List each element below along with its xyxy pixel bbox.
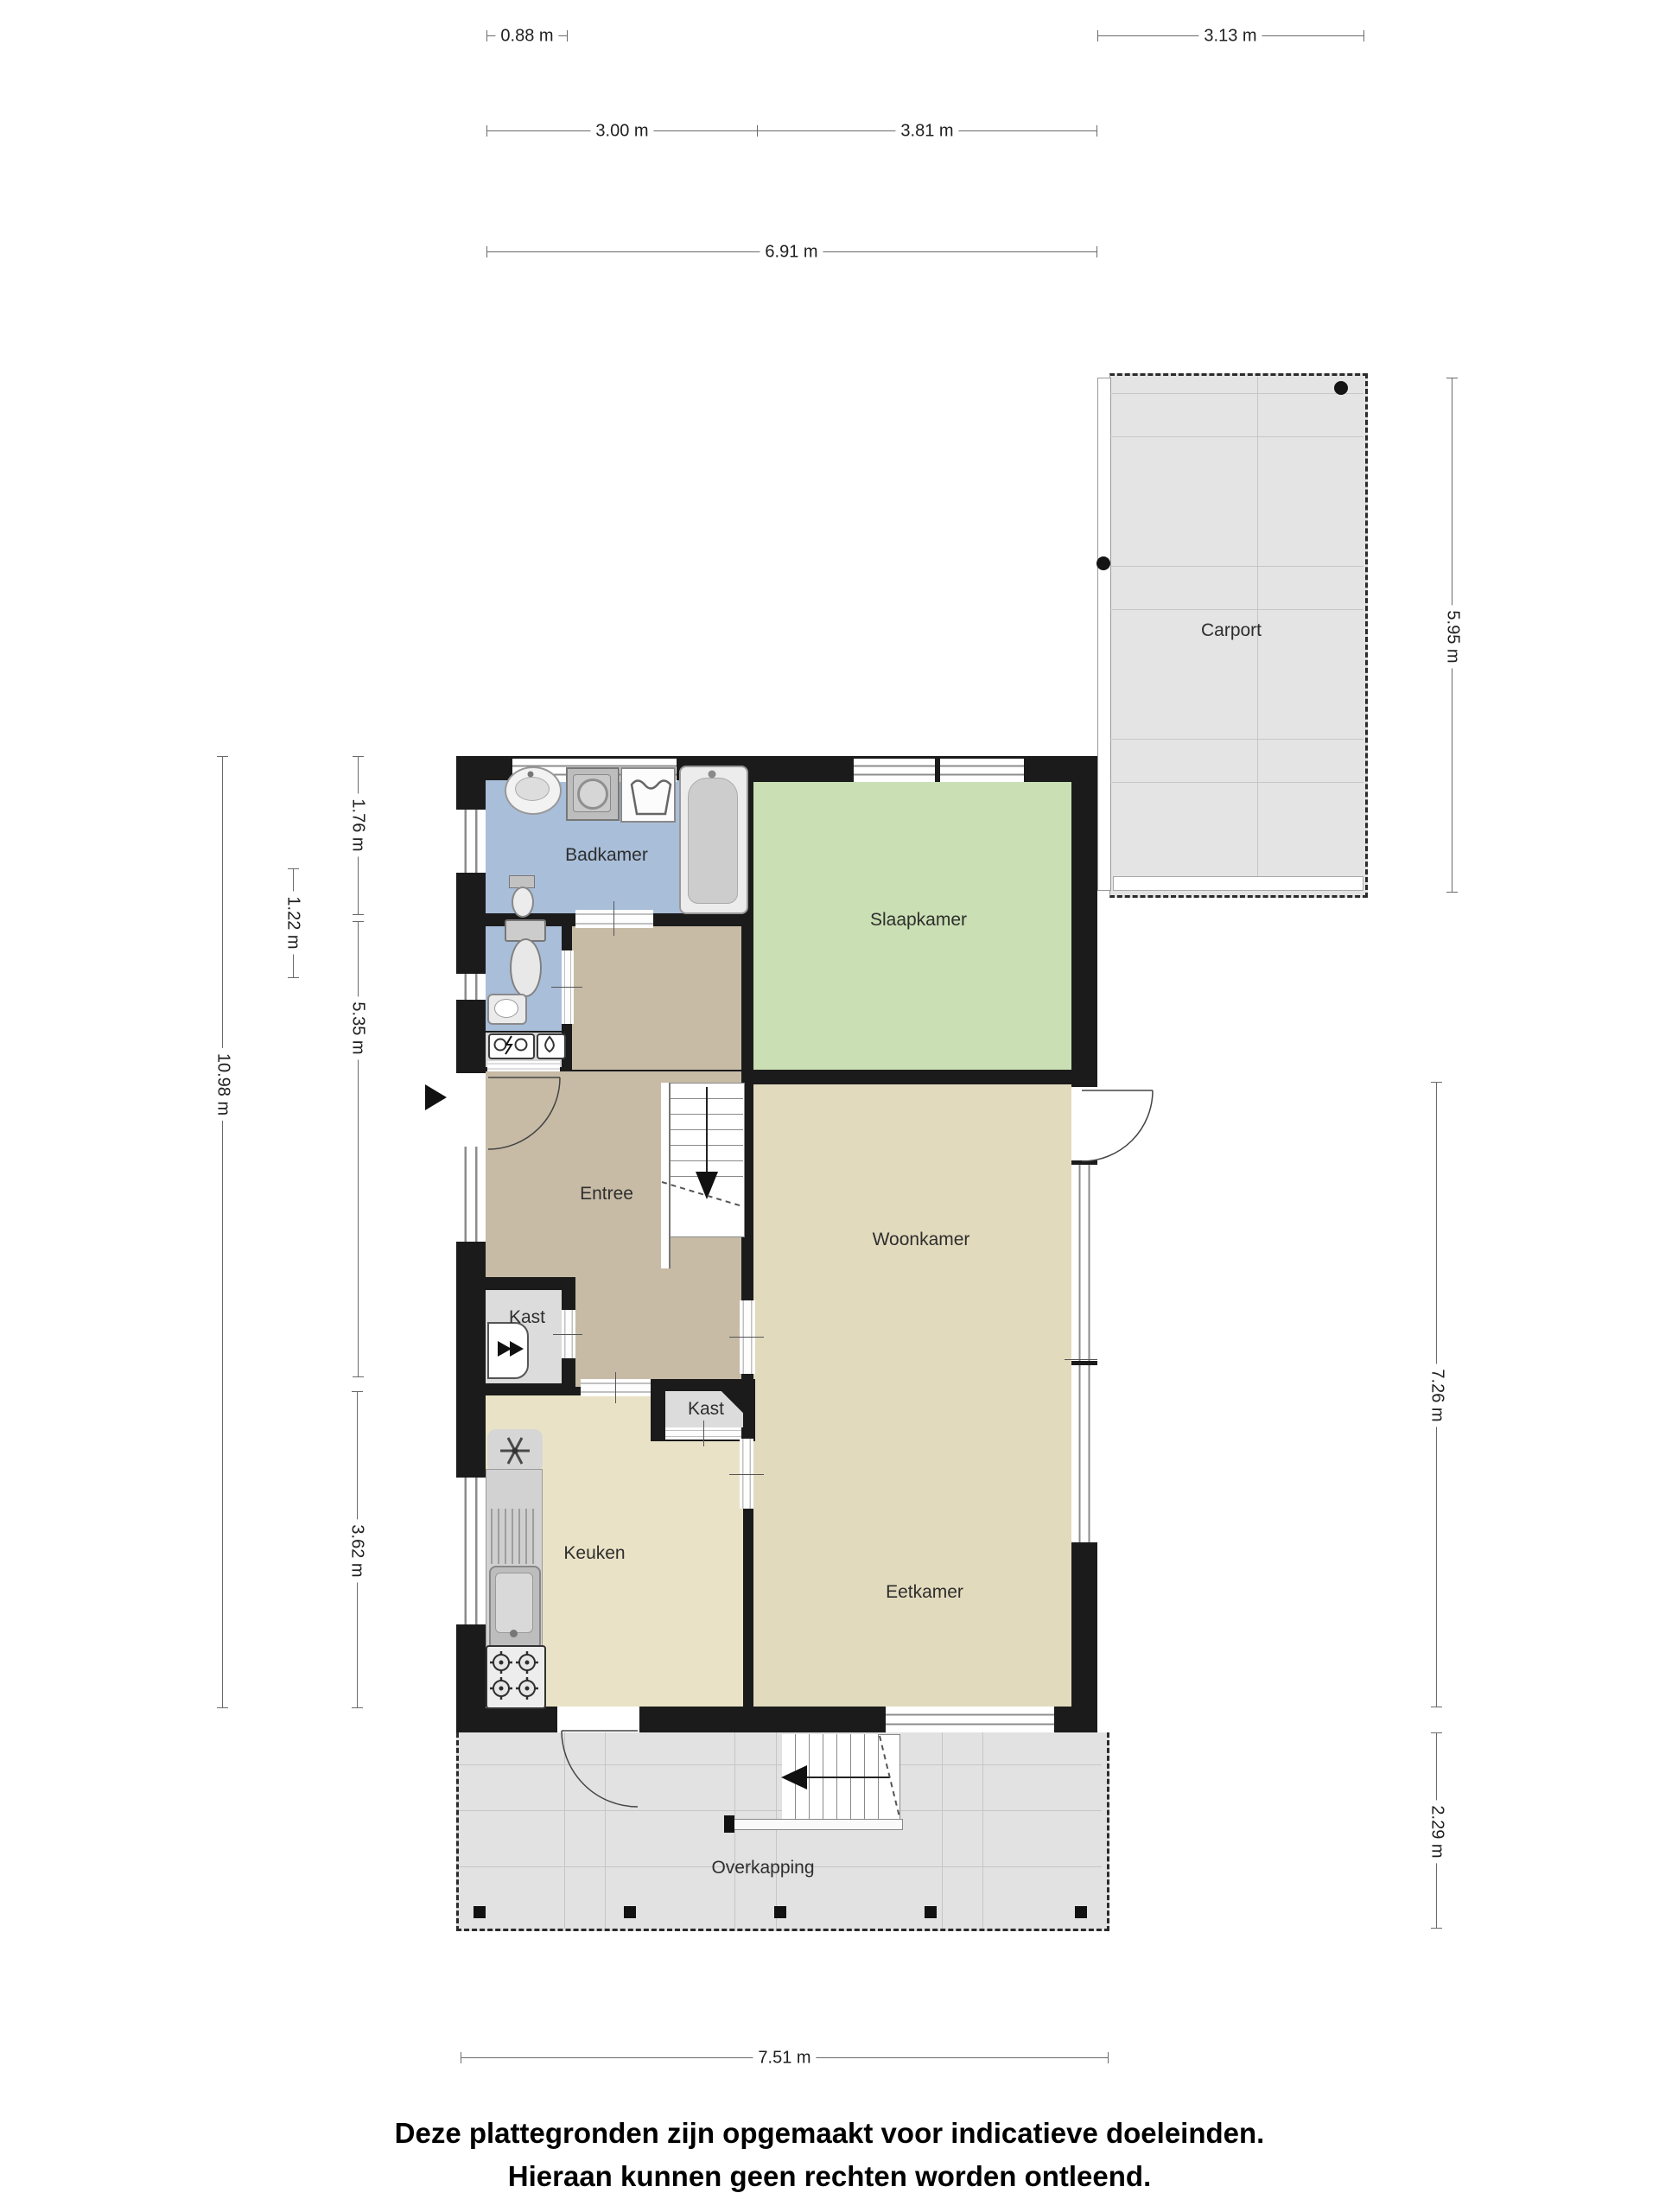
room-label-slaapkamer: Slaapkamer <box>870 910 967 931</box>
door-tick <box>551 987 582 988</box>
kitchen-sink-basin <box>495 1573 533 1633</box>
keuken-door-opening <box>557 1707 639 1732</box>
window-wc-left <box>456 974 486 1000</box>
dim-tick <box>486 30 487 41</box>
dim-label-751: 7.51 m <box>753 2049 816 2069</box>
tile-gridline <box>1110 782 1363 783</box>
window-woonkamer-right-1 <box>1071 1165 1097 1361</box>
disclaimer: Deze plattegronden zijn opgemaakt voor i… <box>0 2112 1659 2198</box>
room-label-keuken: Keuken <box>563 1543 625 1564</box>
room-entree-upper <box>572 926 741 1070</box>
tile-gridline <box>459 1810 1102 1811</box>
terrace-door-opening <box>1071 1087 1097 1160</box>
stairs-handrail-cap <box>724 1815 734 1833</box>
dim-label-229: 2.29 m <box>1427 1800 1447 1863</box>
dim-tick <box>1108 2052 1109 2063</box>
tile-gridline <box>1110 436 1363 437</box>
dim-tick <box>1446 378 1458 378</box>
dim-tick <box>486 125 487 137</box>
fountain-sink-bowl <box>494 999 518 1018</box>
dim-label-300: 3.00 m <box>590 122 653 142</box>
disclaimer-line-1: Deze plattegronden zijn opgemaakt voor i… <box>0 2112 1659 2155</box>
post <box>1075 1906 1087 1918</box>
stairs-handrail <box>730 1819 903 1830</box>
window-mullion <box>935 759 940 782</box>
dim-label-535: 5.35 m <box>348 996 368 1059</box>
front-door-opening <box>456 1073 486 1147</box>
dim-tick <box>217 756 228 757</box>
meterkast-door <box>487 1061 560 1071</box>
dim-tick <box>352 1391 363 1392</box>
tile-gridline <box>1110 566 1363 567</box>
tile-gridline <box>459 1764 1102 1765</box>
window-badkamer-left <box>456 810 486 873</box>
stairs-treads <box>669 1084 743 1181</box>
badkamer-door <box>575 910 653 928</box>
door-tick <box>729 1474 764 1475</box>
window-woonkamer-right-2 <box>1071 1365 1097 1542</box>
dim-label-1098: 10.98 m <box>213 1048 233 1121</box>
dim-label-313: 3.13 m <box>1198 27 1262 47</box>
door-tick <box>553 1334 582 1335</box>
dim-tick <box>217 1707 228 1708</box>
boiler-icon <box>487 1322 529 1379</box>
post <box>624 1906 636 1918</box>
stairs-stringer <box>661 1083 671 1268</box>
window-keuken-left <box>456 1478 486 1624</box>
laundry-basket-icon <box>620 767 676 823</box>
dim-tick <box>353 756 364 757</box>
dim-label-691: 6.91 m <box>760 243 823 263</box>
tile-gridline <box>564 1732 565 1929</box>
room-label-kast1: Kast <box>509 1307 545 1328</box>
dim-tick <box>1431 1928 1442 1929</box>
post <box>774 1906 786 1918</box>
window-entree-left <box>456 1147 486 1242</box>
tile-gridline <box>1110 739 1363 740</box>
dim-label-595: 5.95 m <box>1443 605 1463 668</box>
floorplan-page: { "rooms": { "badkamer": "Badkamer", "sl… <box>0 0 1659 2212</box>
tile-gridline <box>982 1732 983 1929</box>
dim-tick <box>1431 1707 1442 1707</box>
dim-tick <box>353 1376 364 1377</box>
dim-tick <box>1096 246 1097 257</box>
dim-line-1098 <box>222 756 223 1708</box>
bathtub-inner <box>688 778 738 904</box>
door-tick <box>703 1421 704 1446</box>
dim-tick <box>1431 1082 1442 1083</box>
dim-tick <box>1431 1732 1442 1733</box>
washing-machine-drum <box>577 779 608 810</box>
room-label-entree: Entree <box>580 1184 633 1205</box>
tile-gridline <box>734 1732 735 1929</box>
tile-gridline <box>605 1732 606 1929</box>
toilet-small-bowl <box>512 887 534 918</box>
room-label-eetkamer: Eetkamer <box>886 1582 963 1603</box>
post <box>925 1906 937 1918</box>
dim-label-122: 1.22 m <box>283 891 303 954</box>
dim-tick <box>288 868 299 869</box>
stove-icon <box>486 1645 546 1709</box>
dim-tick <box>288 977 299 978</box>
tile-gridline <box>1110 393 1363 394</box>
dim-tick <box>461 2052 461 2063</box>
dim-label-088: 0.88 m <box>495 27 558 47</box>
door-tick <box>729 1337 764 1338</box>
kitchen-sink-drain <box>510 1630 518 1637</box>
ventilation-fan-icon <box>487 1429 543 1472</box>
dim-line-535 <box>358 921 359 1377</box>
window-tick <box>1065 1359 1097 1360</box>
tile-gridline <box>776 1732 777 1929</box>
room-label-overkapping: Overkapping <box>711 1858 814 1878</box>
room-label-carport: Carport <box>1201 620 1262 641</box>
stairs-exterior-treads <box>782 1734 879 1819</box>
dim-tick <box>1097 30 1098 41</box>
dim-tick <box>486 246 487 257</box>
dim-tick <box>1096 125 1097 137</box>
tile-gridline <box>1110 609 1363 610</box>
dim-tick <box>1446 892 1458 893</box>
carport-beam <box>1113 876 1363 891</box>
post <box>474 1906 486 1918</box>
room-label-woonkamer: Woonkamer <box>873 1230 970 1250</box>
dim-tick <box>352 1707 363 1708</box>
dim-tick <box>353 921 364 922</box>
dim-tick <box>567 30 568 41</box>
carport-wall-strip <box>1097 378 1111 891</box>
room-label-kast2: Kast <box>688 1399 724 1420</box>
dim-label-726: 7.26 m <box>1427 1363 1447 1427</box>
dim-label-176: 1.76 m <box>348 793 368 856</box>
tile-gridline <box>942 1732 943 1929</box>
kitchen-drainer <box>491 1509 536 1564</box>
room-woonkamer-eetkamer <box>753 1084 1071 1707</box>
gas-meter-icon <box>537 1033 566 1059</box>
toilet-bowl <box>510 938 542 997</box>
dim-tick <box>1363 30 1364 41</box>
window-eetkamer-bottom <box>886 1707 1054 1732</box>
sink-bowl <box>515 777 550 801</box>
dim-label-362: 3.62 m <box>347 1519 367 1582</box>
door-tick <box>613 901 614 936</box>
disclaimer-line-2: Hieraan kunnen geen rechten worden ontle… <box>0 2155 1659 2198</box>
electric-meter-icon <box>488 1033 535 1059</box>
entrance-arrow-icon <box>425 1084 447 1110</box>
dim-label-381: 3.81 m <box>895 122 958 142</box>
door-tick <box>615 1372 616 1403</box>
dim-tick <box>353 914 364 915</box>
room-label-badkamer: Badkamer <box>565 845 648 866</box>
